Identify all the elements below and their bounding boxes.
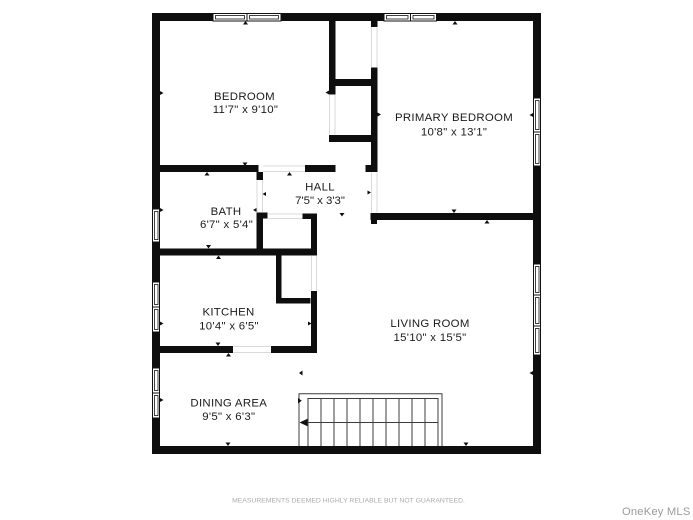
svg-text:BEDROOM: BEDROOM: [214, 91, 275, 103]
svg-text:11'7" x 9'10": 11'7" x 9'10": [213, 104, 279, 116]
svg-text:KITCHEN: KITCHEN: [202, 307, 254, 319]
svg-text:10'4" x 6'5": 10'4" x 6'5": [199, 321, 259, 333]
svg-text:OneKey MLS: OneKey MLS: [622, 506, 691, 518]
svg-text:15'10" x 15'5": 15'10" x 15'5": [393, 332, 466, 344]
svg-text:MEASUREMENTS DEEMED HIGHLY REL: MEASUREMENTS DEEMED HIGHLY RELIABLE BUT …: [232, 498, 465, 505]
svg-text:BATH: BATH: [211, 206, 242, 218]
svg-text:7'5" x 3'3": 7'5" x 3'3": [295, 195, 345, 207]
svg-text:DINING AREA: DINING AREA: [190, 397, 267, 409]
svg-text:6'7" x 5'4": 6'7" x 5'4": [200, 219, 253, 231]
svg-text:HALL: HALL: [305, 182, 335, 194]
svg-text:9'5" x 6'3": 9'5" x 6'3": [202, 411, 255, 423]
svg-text:10'8" x 13'1": 10'8" x 13'1": [421, 127, 487, 139]
svg-text:LIVING ROOM: LIVING ROOM: [390, 318, 469, 330]
svg-text:PRIMARY BEDROOM: PRIMARY BEDROOM: [395, 112, 513, 124]
